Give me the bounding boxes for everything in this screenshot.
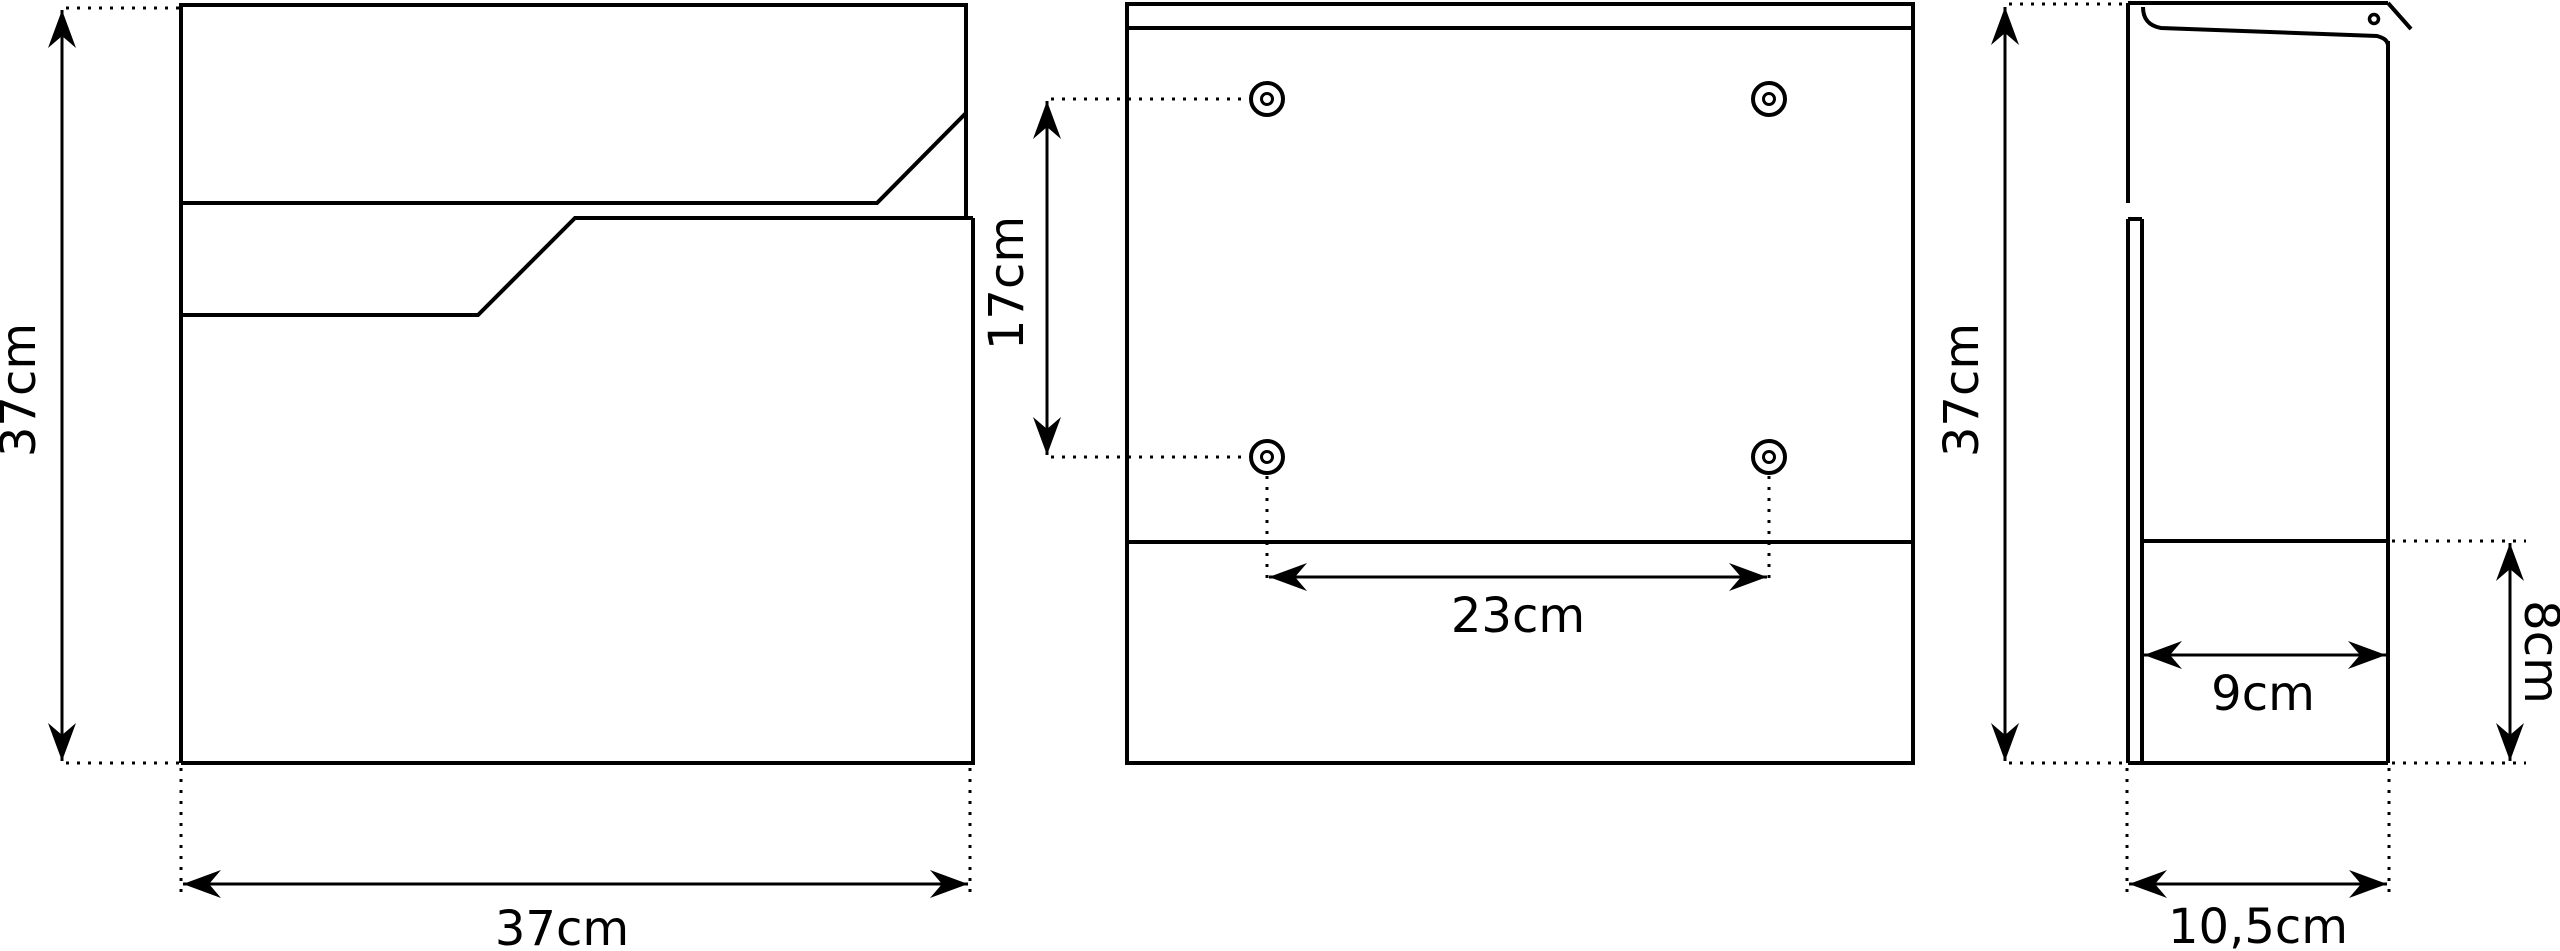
back-view-outline <box>1127 4 1913 763</box>
front-body-bottom-outline <box>181 218 973 763</box>
technical-drawing-canvas <box>0 0 2560 951</box>
mailbox-dimension-drawing: 37cm 37cm 17cm 23cm 37cm 9cm 8cm 10,5cm <box>0 0 2560 951</box>
side-lid-bottom-curve <box>2143 7 2388 45</box>
front-view-dimensions <box>62 8 970 892</box>
mounting-hole-bottom-left <box>1251 441 1283 473</box>
side-lid-pivot-hole <box>2370 15 2379 24</box>
side-view-outline <box>2128 3 2411 763</box>
total-depth-dimension-label: 10,5cm <box>2168 903 2348 951</box>
mounting-hole-top-right <box>1753 83 1785 115</box>
front-body-top-outline <box>181 5 966 763</box>
back-view-dimensions <box>1047 99 1769 584</box>
back-plate-outline <box>1127 4 1913 763</box>
lower-height-dimension-label: 8cm <box>2517 600 2560 704</box>
front-lid-bottom-edge <box>181 113 966 203</box>
hole-horizontal-spacing-label: 23cm <box>1451 592 1585 640</box>
side-height-dimension-label: 37cm <box>1938 323 1986 457</box>
mounting-hole-top-left <box>1251 83 1283 115</box>
back-mounting-holes <box>1251 83 1785 473</box>
front-width-dimension-label: 37cm <box>495 905 629 951</box>
side-lid-overhang <box>2388 3 2411 29</box>
hole-vertical-spacing-label: 17cm <box>983 216 1031 350</box>
inner-depth-dimension-label: 9cm <box>2211 670 2315 718</box>
side-view-dimensions <box>2005 4 2526 892</box>
front-shelf-edge <box>181 218 973 315</box>
mounting-hole-bottom-right <box>1753 441 1785 473</box>
front-height-dimension-label: 37cm <box>0 323 43 457</box>
front-view-outline <box>181 5 973 763</box>
